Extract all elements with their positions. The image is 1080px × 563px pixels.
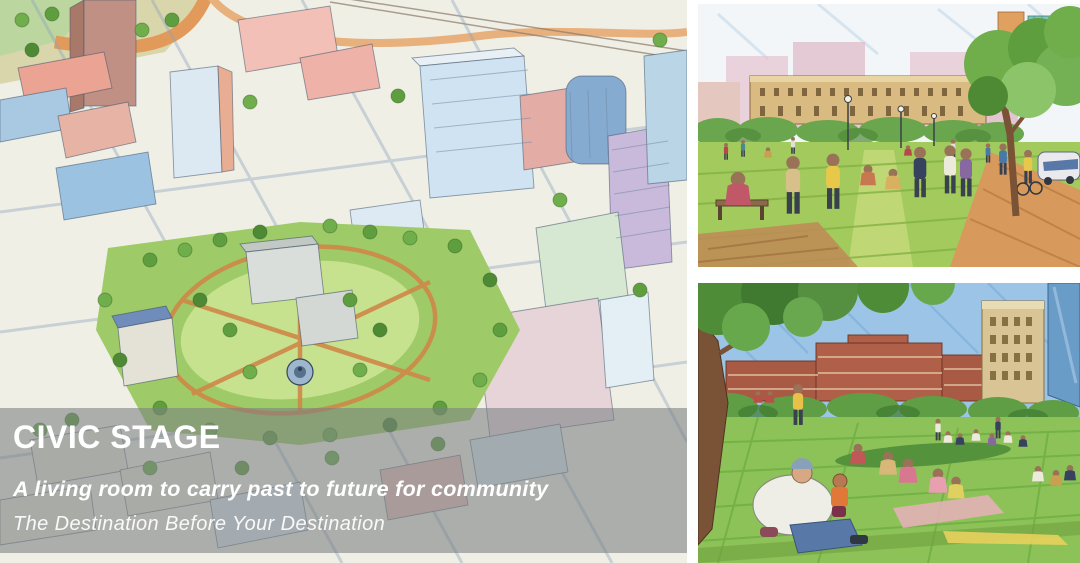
picnic-rendering-panel — [698, 283, 1080, 563]
project-title: CIVIC STAGE — [13, 421, 671, 453]
caption-band: CIVIC STAGE A living room to carry past … — [0, 408, 687, 553]
promenade-illustration — [698, 4, 1080, 267]
picnic-illustration — [698, 283, 1080, 563]
aerial-rendering-panel: CIVIC STAGE A living room to carry past … — [0, 0, 687, 563]
project-subtitle: A living room to carry past to future fo… — [13, 479, 671, 501]
project-tagline: The Destination Before Your Destination — [13, 514, 671, 534]
promenade-rendering-panel — [698, 4, 1080, 267]
concept-board: CIVIC STAGE A living room to carry past … — [0, 0, 1080, 563]
